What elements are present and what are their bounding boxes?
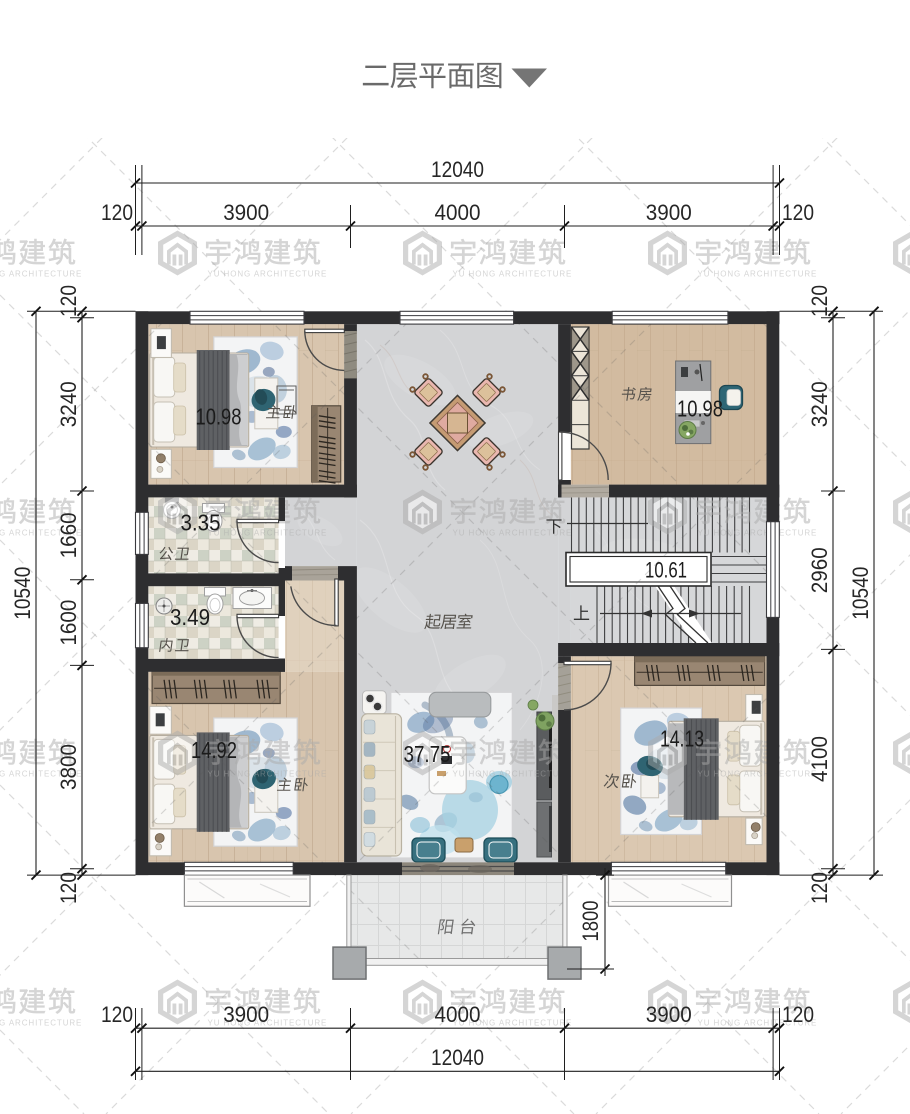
svg-text:120: 120 — [782, 200, 814, 225]
svg-text:37.75: 37.75 — [404, 741, 451, 767]
svg-text:3.35: 3.35 — [181, 510, 221, 536]
svg-text:1800: 1800 — [578, 901, 603, 942]
svg-text:4000: 4000 — [435, 200, 481, 225]
svg-text:12040: 12040 — [431, 1045, 484, 1070]
svg-text:10.61: 10.61 — [645, 558, 687, 583]
svg-text:YU HONG ARCHITECTURE: YU HONG ARCHITECTURE — [208, 270, 328, 279]
svg-text:YU HONG ARCHITECTURE: YU HONG ARCHITECTURE — [453, 770, 573, 779]
svg-text:120: 120 — [56, 872, 81, 904]
svg-text:YU HONG ARCHITECTURE: YU HONG ARCHITECTURE — [698, 770, 818, 779]
svg-text:1660: 1660 — [56, 512, 81, 558]
svg-text:3900: 3900 — [223, 200, 269, 225]
svg-text:YU HONG ARCHITECTURE: YU HONG ARCHITECTURE — [0, 270, 82, 279]
svg-text:3240: 3240 — [56, 381, 81, 427]
svg-text:3900: 3900 — [646, 200, 692, 225]
svg-text:4100: 4100 — [807, 736, 832, 782]
svg-text:10540: 10540 — [10, 567, 35, 620]
svg-text:3900: 3900 — [646, 1002, 692, 1027]
svg-text:120: 120 — [101, 200, 133, 225]
svg-text:2960: 2960 — [807, 547, 832, 593]
svg-text:120: 120 — [56, 285, 81, 317]
svg-text:3900: 3900 — [223, 1002, 269, 1027]
svg-text:4000: 4000 — [435, 1002, 481, 1027]
svg-text:14.13: 14.13 — [660, 726, 704, 752]
svg-text:YU HONG ARCHITECTURE: YU HONG ARCHITECTURE — [453, 270, 573, 279]
svg-text:YU HONG ARCHITECTURE: YU HONG ARCHITECTURE — [208, 770, 328, 779]
svg-text:10.98: 10.98 — [677, 396, 723, 422]
svg-text:YU HONG ARCHITECTURE: YU HONG ARCHITECTURE — [208, 529, 328, 538]
svg-text:12040: 12040 — [431, 157, 484, 182]
svg-text:120: 120 — [101, 1002, 133, 1027]
svg-text:120: 120 — [782, 1002, 814, 1027]
svg-text:3800: 3800 — [56, 744, 81, 790]
svg-text:10540: 10540 — [848, 567, 873, 620]
svg-text:3.49: 3.49 — [170, 604, 210, 630]
svg-text:YU HONG ARCHITECTURE: YU HONG ARCHITECTURE — [0, 1019, 82, 1028]
svg-text:YU HONG ARCHITECTURE: YU HONG ARCHITECTURE — [698, 529, 818, 538]
svg-text:1600: 1600 — [56, 600, 81, 646]
svg-text:YU HONG ARCHITECTURE: YU HONG ARCHITECTURE — [698, 270, 818, 279]
svg-text:120: 120 — [807, 872, 832, 904]
svg-text:3240: 3240 — [807, 381, 832, 427]
svg-text:14.92: 14.92 — [191, 737, 237, 763]
svg-text:10.98: 10.98 — [196, 404, 242, 430]
svg-text:120: 120 — [807, 285, 832, 317]
